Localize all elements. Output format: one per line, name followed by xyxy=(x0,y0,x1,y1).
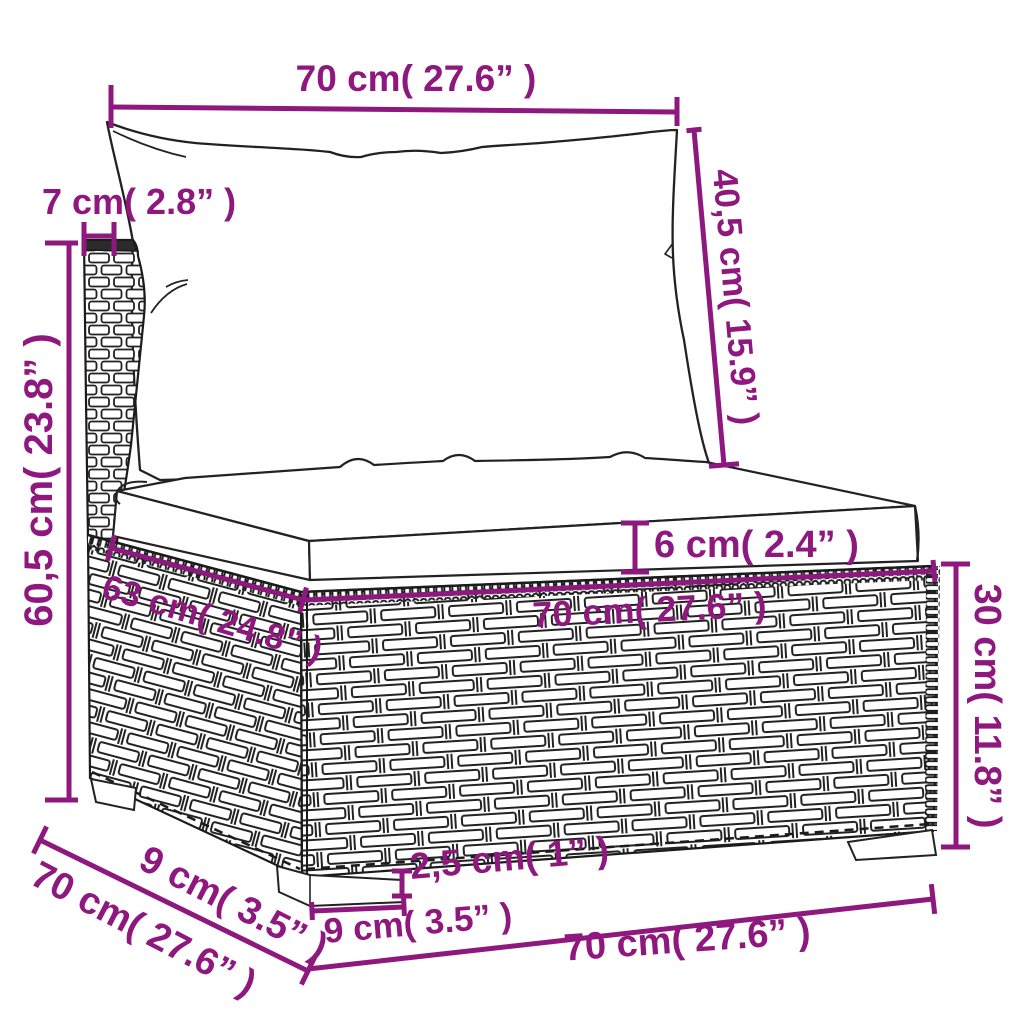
svg-text:7 cm( 2.8” ): 7 cm( 2.8” ) xyxy=(42,181,236,222)
svg-text:60,5 cm( 23.8” ): 60,5 cm( 23.8” ) xyxy=(17,333,61,627)
svg-text:70 cm( 27.6” ): 70 cm( 27.6” ) xyxy=(296,58,537,99)
svg-text:30 cm( 11.8” ): 30 cm( 11.8” ) xyxy=(966,583,1008,828)
svg-text:6 cm( 2.4” ): 6 cm( 2.4” ) xyxy=(654,524,859,566)
